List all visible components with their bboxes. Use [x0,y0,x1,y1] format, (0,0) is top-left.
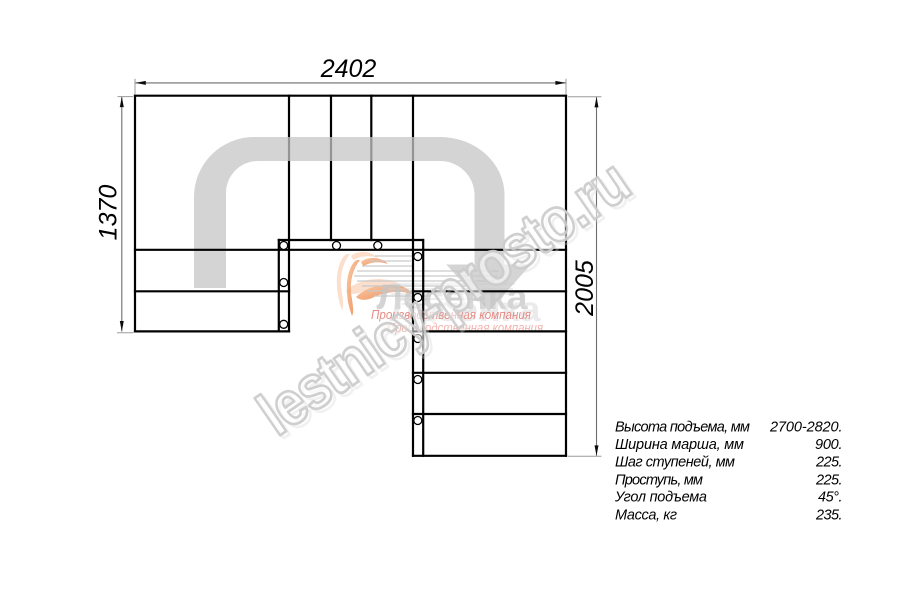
svg-text:225.: 225. [815,472,843,488]
svg-text:2005: 2005 [571,260,599,317]
svg-text:Шаг ступеней, мм: Шаг ступеней, мм [615,455,735,471]
svg-text:Высота подъема, мм: Высота подъема, мм [615,420,750,436]
svg-text:225.: 225. [815,455,843,471]
svg-text:Масса, кг: Масса, кг [615,507,677,523]
svg-text:45°.: 45°. [818,490,843,506]
svg-text:2700-2820.: 2700-2820. [769,420,843,436]
svg-text:Ширина марша, мм: Ширина марша, мм [615,437,744,453]
svg-text:1370: 1370 [95,185,123,241]
svg-text:235.: 235. [815,507,843,523]
svg-text:Угол подъема: Угол подъема [614,490,707,506]
svg-text:2402: 2402 [320,55,377,83]
svg-text:900.: 900. [815,437,843,453]
svg-text:Проступь, мм: Проступь, мм [615,472,703,488]
